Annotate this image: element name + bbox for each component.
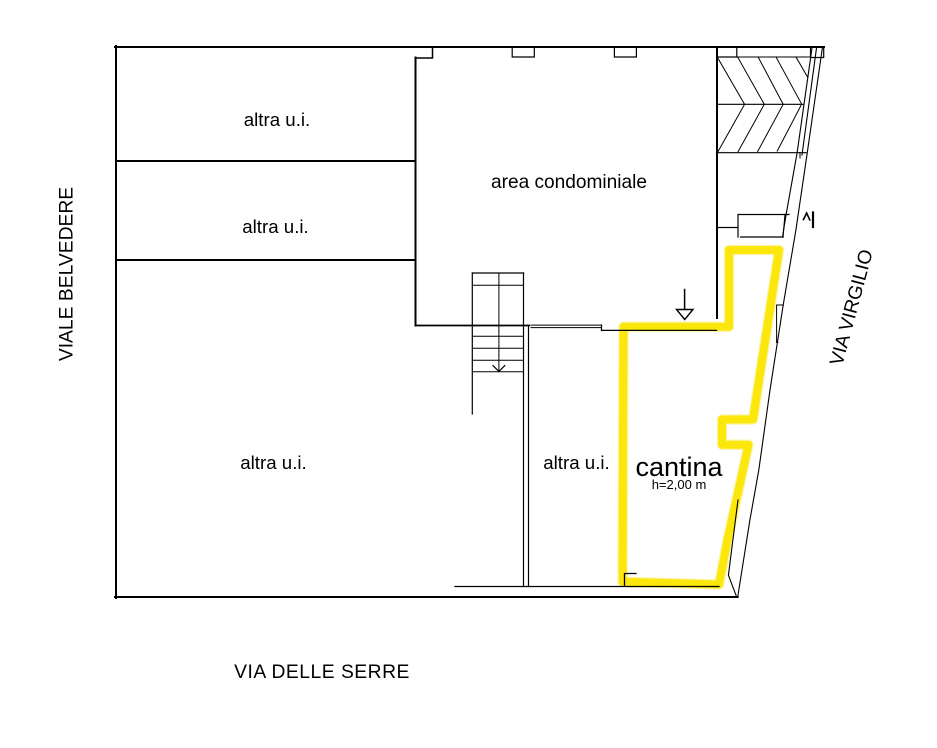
svg-text:VIA DELLE SERRE: VIA DELLE SERRE <box>234 662 410 683</box>
svg-text:area condominiale: area condominiale <box>491 172 647 193</box>
svg-text:altra u.i.: altra u.i. <box>242 216 308 237</box>
svg-text:VIALE BELVEDERE: VIALE BELVEDERE <box>57 187 78 361</box>
svg-text:altra u.i.: altra u.i. <box>240 452 306 473</box>
svg-text:altra u.i.: altra u.i. <box>244 109 310 130</box>
svg-text:altra u.i.: altra u.i. <box>543 452 609 473</box>
svg-text:h=2,00 m: h=2,00 m <box>652 477 707 492</box>
